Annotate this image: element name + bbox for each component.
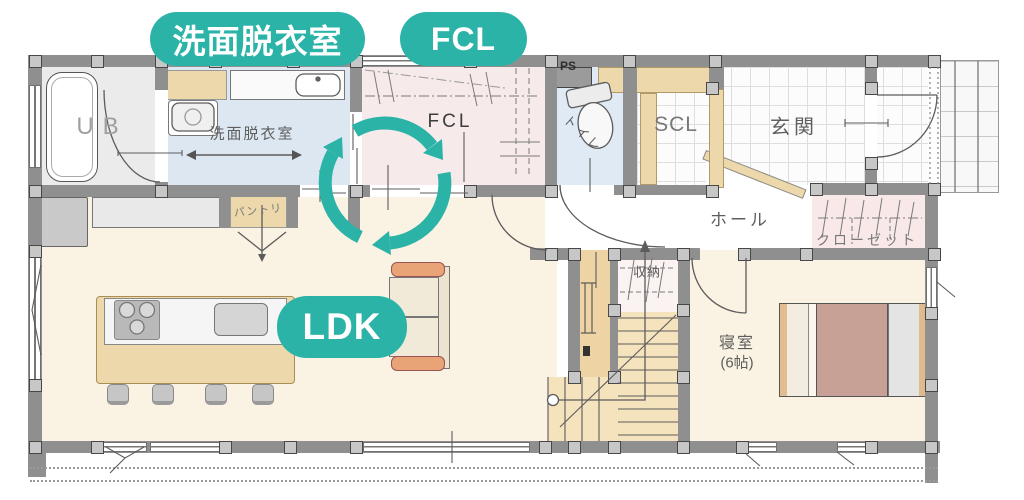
wall-pillar bbox=[155, 185, 168, 198]
opening-hall-door bbox=[545, 195, 557, 248]
sofa-armrest bbox=[391, 262, 445, 277]
wall-pillar bbox=[925, 441, 938, 454]
wall-ldk-corridor bbox=[568, 250, 580, 377]
floor-porch bbox=[940, 60, 999, 193]
wall-pillar bbox=[545, 55, 558, 68]
wall-pillar bbox=[865, 441, 878, 454]
wall-pillar bbox=[29, 379, 42, 392]
wall-pillar bbox=[706, 82, 719, 95]
wall-pillar bbox=[568, 371, 581, 384]
wall-pillar bbox=[709, 55, 722, 68]
opening-washroom-fcl bbox=[350, 112, 362, 186]
opening-washroom-ldk bbox=[300, 185, 348, 197]
wall-pillar bbox=[29, 185, 42, 198]
wall-pillar bbox=[29, 441, 42, 454]
wall-pillar bbox=[677, 248, 690, 261]
wall-pillar bbox=[568, 441, 581, 454]
wall-pillar bbox=[91, 55, 104, 68]
scl-shelf-left bbox=[640, 93, 657, 185]
window-ldk-south-c bbox=[363, 442, 530, 452]
kitchen-sink bbox=[214, 303, 268, 336]
wall-pillar bbox=[865, 157, 878, 170]
stool bbox=[107, 384, 129, 405]
wall-pillar bbox=[219, 441, 232, 454]
stool bbox=[152, 384, 174, 405]
wall-pantry-post bbox=[287, 190, 298, 228]
wall-pillar bbox=[623, 185, 636, 198]
genkan-shelf bbox=[709, 89, 724, 188]
opening-toilet-door bbox=[558, 185, 614, 195]
wall-pillar bbox=[925, 307, 938, 320]
window-ub-west bbox=[29, 85, 41, 168]
wall-pillar bbox=[608, 248, 621, 261]
window-bedroom-south-a bbox=[745, 442, 777, 452]
wall-pillar bbox=[608, 371, 621, 384]
wall-pillar bbox=[608, 304, 621, 317]
room-label-scl: SCL bbox=[654, 113, 698, 137]
wall-pillar bbox=[928, 55, 941, 68]
window-ldk-south-a bbox=[103, 442, 147, 452]
laundry-counter bbox=[167, 70, 227, 100]
room-label-ub: UB bbox=[76, 113, 127, 141]
wall-pillar bbox=[29, 245, 42, 258]
wall-pillar bbox=[928, 183, 941, 196]
opening-ub-door bbox=[155, 90, 168, 182]
floor-stairs-upper bbox=[618, 312, 678, 441]
wall-pillar bbox=[568, 248, 581, 261]
window-bedroom-south-b bbox=[837, 442, 868, 452]
fridge bbox=[40, 197, 88, 247]
wall-right bbox=[925, 183, 938, 483]
wall-pantry-post bbox=[219, 190, 230, 228]
bed-foot-board bbox=[780, 304, 787, 396]
room-label-hall: ホール bbox=[710, 206, 770, 231]
opening-entry-door bbox=[865, 95, 877, 157]
window-bedroom-east bbox=[926, 267, 937, 309]
wall-pillar bbox=[91, 441, 104, 454]
vanity-counter bbox=[230, 70, 345, 100]
wall-pillar bbox=[350, 185, 363, 198]
room-label-genkan: 玄関 bbox=[770, 111, 818, 140]
wall-pillar bbox=[284, 441, 297, 454]
wall-pillar bbox=[706, 185, 719, 198]
wall-pillar bbox=[545, 248, 558, 261]
window-ldk-south-b bbox=[150, 442, 220, 452]
wall-pillar bbox=[810, 183, 823, 196]
stool bbox=[205, 384, 227, 405]
wall-pillar bbox=[623, 55, 636, 68]
back-counter bbox=[92, 197, 222, 228]
wall-pillar bbox=[539, 441, 552, 454]
room-label-bedroom-size: (6帖) bbox=[720, 352, 753, 373]
floor-stairs-lower bbox=[548, 377, 618, 441]
wall-pillar bbox=[928, 248, 941, 261]
wall-pillar bbox=[865, 183, 878, 196]
room-label-washroom: 洗面脱衣室 bbox=[209, 123, 294, 144]
wall-pillar bbox=[464, 185, 477, 198]
badge-fcl: FCL bbox=[400, 12, 527, 66]
eave-line bbox=[30, 480, 938, 482]
wall-pillar bbox=[865, 55, 878, 68]
floor-corridor bbox=[580, 250, 610, 377]
wall-pillar bbox=[738, 248, 751, 261]
wall-pillar bbox=[608, 441, 621, 454]
wall-toilet-scl bbox=[623, 67, 637, 185]
cooktop bbox=[114, 300, 160, 340]
wall-stairs-right bbox=[678, 250, 690, 441]
eave-line bbox=[30, 467, 938, 469]
scl-shelf-top bbox=[598, 67, 715, 93]
floor-plan: UB 洗面脱衣室 FCL PS トイレ SCL 玄関 ホール クローゼット 収納… bbox=[0, 0, 1024, 500]
room-label-storage: 収納 bbox=[633, 262, 661, 281]
wall-pillar bbox=[677, 441, 690, 454]
wall-pillar bbox=[677, 371, 690, 384]
badge-washroom: 洗面脱衣室 bbox=[150, 12, 365, 66]
window-ldk-west bbox=[29, 255, 41, 380]
wall-corner-stub bbox=[28, 453, 46, 477]
wall-pillar bbox=[350, 441, 363, 454]
wall-pillar bbox=[736, 441, 749, 454]
room-label-closet: クローゼット bbox=[816, 230, 918, 250]
opening-fcl-ldk bbox=[370, 185, 470, 197]
wall-pillar bbox=[865, 82, 878, 95]
wall-pillar bbox=[800, 248, 813, 261]
stool bbox=[252, 384, 274, 405]
sofa-armrest bbox=[391, 356, 445, 371]
wall-pillar bbox=[925, 379, 938, 392]
room-label-bedroom: 寝室 bbox=[719, 329, 755, 353]
wall-pillar bbox=[677, 304, 690, 317]
room-label-ps: PS bbox=[560, 59, 576, 73]
room-label-fcl: FCL bbox=[428, 111, 473, 133]
floor-genkan-edge bbox=[928, 67, 940, 185]
bed-blanket bbox=[816, 303, 888, 397]
wall-pillar bbox=[29, 55, 42, 68]
bed-pillow-area bbox=[888, 304, 921, 396]
badge-ldk: LDK bbox=[277, 296, 407, 358]
wall-pillar bbox=[545, 185, 558, 198]
